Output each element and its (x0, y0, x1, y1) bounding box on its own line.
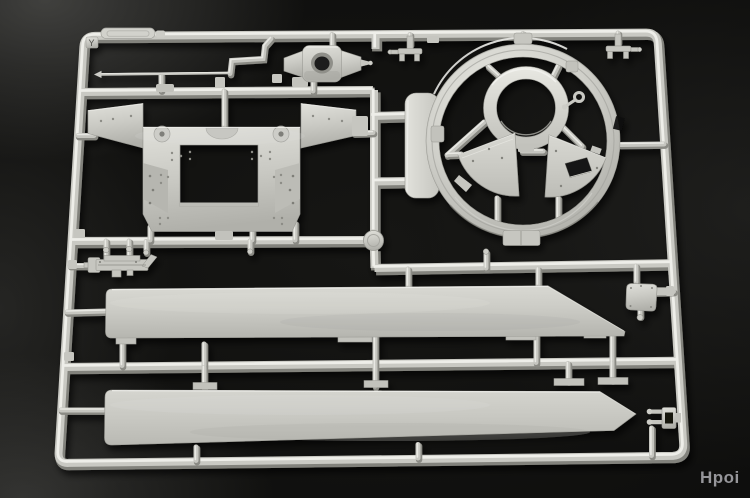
fender-strip-upper (106, 286, 626, 344)
frame-label-tab (101, 28, 155, 39)
rod-tip (94, 71, 102, 78)
watermark: Hpoi (700, 468, 740, 488)
ring-bottom-lug (503, 231, 540, 246)
hull-right-wing (301, 104, 356, 149)
machine-gun-part (84, 255, 157, 278)
photo-model-kit-sprue: Y Hpoi (0, 0, 750, 498)
small-plate-part (626, 284, 668, 312)
mantlet-drum-part (284, 46, 373, 83)
runner-pad-circle (364, 231, 384, 251)
sprue-letter: Y (89, 38, 95, 48)
turret-ring-part (405, 33, 625, 246)
collar-ring-part (484, 67, 569, 150)
sprue: Y (58, 28, 685, 465)
bracket-part-bottom-right (647, 408, 681, 429)
sprue-photo-svg: Y (0, 0, 750, 498)
fender-strip-lower (105, 378, 637, 446)
